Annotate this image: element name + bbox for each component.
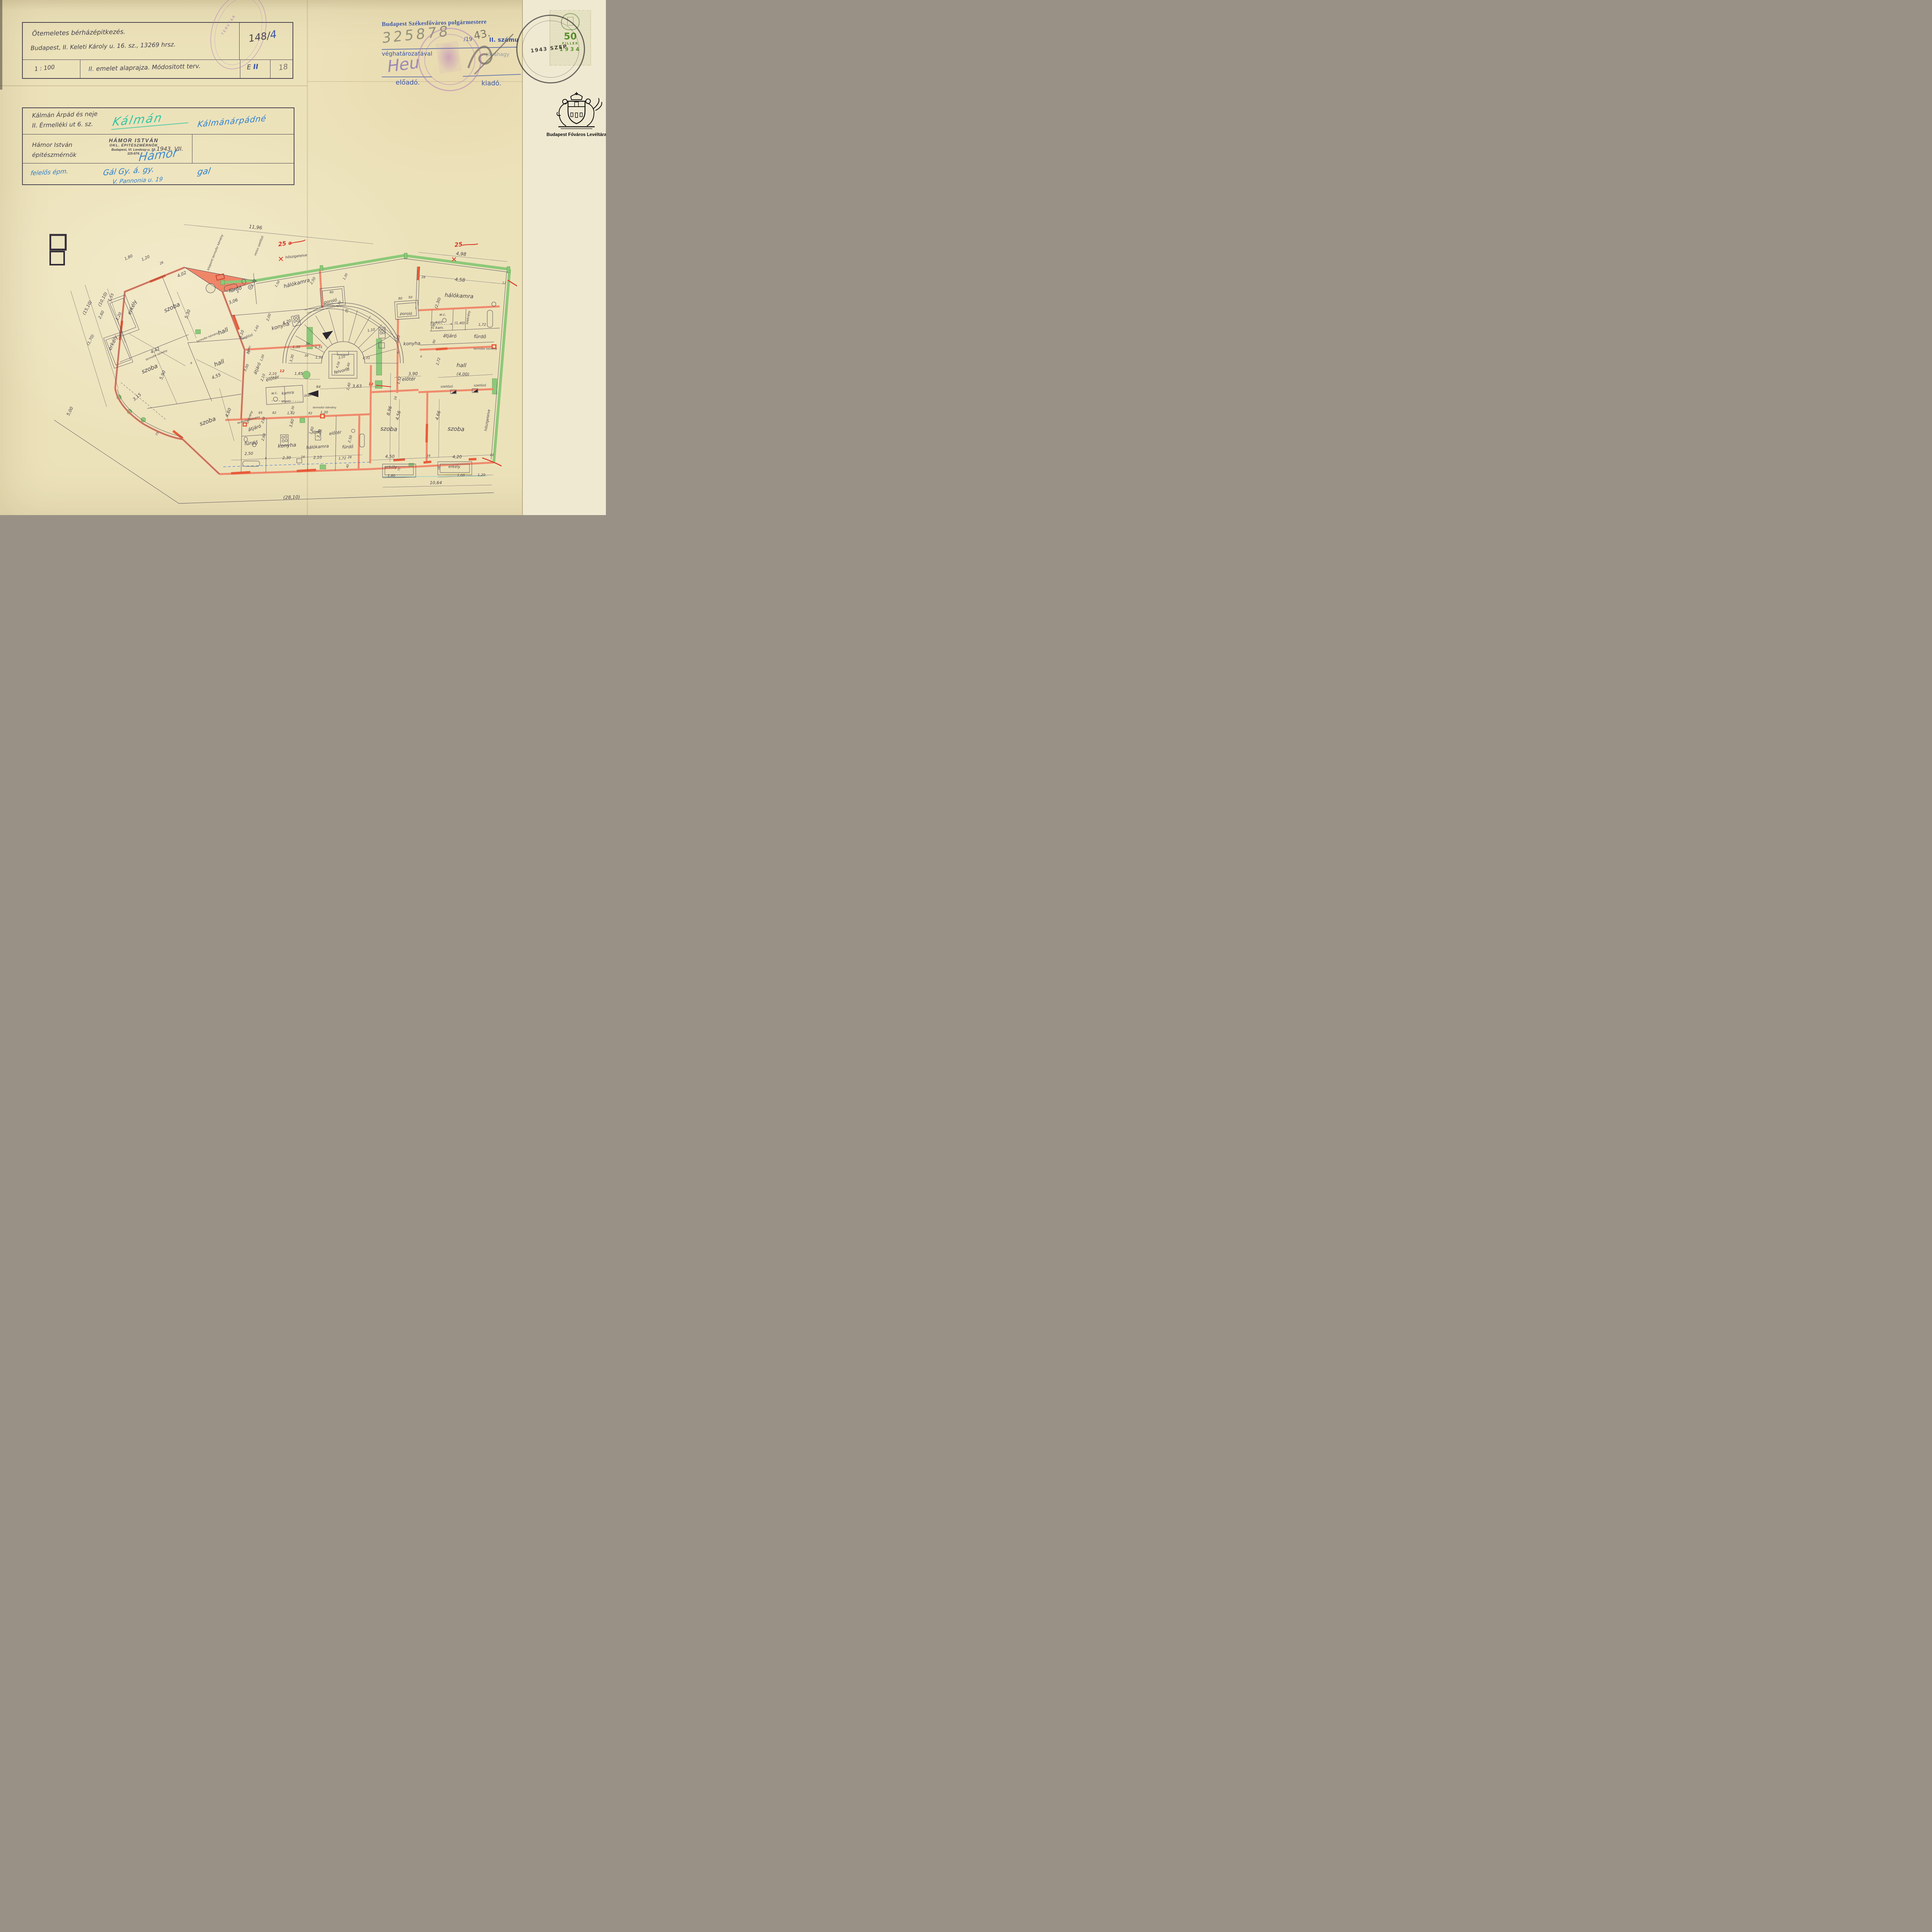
plan-label: hőszigetelve: [484, 409, 492, 431]
plan-label: 2,10: [338, 355, 345, 360]
plan-label: 3,30: [289, 354, 295, 362]
plan-label: poroló: [323, 298, 338, 305]
archive-logo: Budapest Főváros Levéltára: [546, 91, 606, 137]
plan-label: központi termofor kémény: [206, 234, 224, 271]
plan-label: 1,20: [478, 473, 485, 477]
plan-label: átjáró: [247, 423, 262, 432]
plan-label: 82: [272, 411, 276, 415]
plan-label: 4,58: [454, 277, 465, 283]
divider: [80, 60, 80, 78]
plan-label: 1,60: [457, 474, 465, 478]
plan-label: 30: [306, 342, 310, 346]
plan-label: 1,65: [253, 325, 260, 332]
plan-label: 90: [432, 339, 437, 344]
plan-label: 2,30: [282, 456, 291, 461]
plan-label: 6: [265, 457, 267, 460]
plan-label: hall: [456, 362, 466, 369]
plan-label: w.c.: [439, 313, 446, 317]
plan-label: 4,98: [456, 251, 466, 257]
plan-label: 80: [398, 297, 402, 300]
plan-label: 82: [308, 412, 312, 415]
plan-label: szoba: [141, 362, 159, 375]
plan-label: (1,70): [86, 334, 95, 346]
drawing-scale: 1 : 100: [34, 63, 55, 72]
plan-label: 1,31: [362, 356, 370, 360]
plan-label: 2,60: [261, 433, 267, 441]
plan-label: 4,50: [385, 454, 395, 459]
plan-label: 2,00: [266, 313, 272, 322]
plan-label: 4,56: [395, 410, 402, 421]
plan-label: 2,10: [313, 456, 322, 460]
plan-label: 1,72: [478, 323, 486, 327]
plan-label: szoba: [199, 415, 217, 427]
plan-label: 2,10: [269, 372, 277, 376]
plan-label: 4,55: [211, 372, 222, 380]
plan-label: 1,80: [124, 254, 134, 261]
plan-label: hőszigetelve: [285, 253, 308, 260]
plan-label: átjáró: [443, 333, 456, 338]
plan-label: (28,10): [283, 494, 300, 500]
yellow-fringe-line: [440, 474, 471, 474]
plan-label: előtér: [329, 430, 342, 437]
plan-label: (15,10): [82, 300, 93, 316]
plan-label: hálókamra: [445, 292, 474, 300]
wall-chunks: [120, 267, 476, 473]
plan-label: hall: [217, 326, 230, 337]
plan-label: 2,10: [396, 335, 401, 343]
sheet-code-letter: E: [247, 63, 252, 71]
plan-label: 1,20: [320, 411, 328, 415]
plan-label: kam.: [435, 326, 444, 330]
plan-label: 3,90: [408, 371, 418, 377]
plan-label: (10,10): [97, 291, 109, 308]
plan-label: 28: [437, 466, 441, 470]
plan-label: 4,56: [335, 361, 341, 369]
plan-label: 1,31: [315, 345, 323, 349]
plan-label: poroló: [400, 311, 412, 316]
plan-label: 28: [159, 261, 164, 265]
project-title: Ötemeletes bérházépitkezés.: [32, 28, 126, 37]
divider: [192, 134, 192, 163]
red-annotations: [289, 240, 517, 466]
floor-number-blue: II.: [88, 65, 94, 72]
plan-label: 5,90: [158, 370, 167, 381]
plan-label: vezuv szellőző: [253, 235, 264, 256]
plan-label: 4,66: [434, 410, 442, 421]
owner-signature: Kálmán: [111, 109, 191, 130]
bay-chord-dashed: [121, 383, 165, 419]
plan-label: (2,30): [434, 297, 442, 309]
plan-label: órák: [304, 393, 312, 398]
plan-label: 6: [190, 362, 192, 365]
green-wall-pieces: [117, 253, 510, 469]
vent-dashed-lines: [272, 324, 451, 401]
scan-artifacts: [50, 235, 66, 265]
plan-label: átjáró: [253, 362, 262, 375]
plan-label: konyha: [403, 340, 420, 347]
plan-label: 1,40: [346, 382, 352, 391]
plan-label: szellőző: [474, 384, 486, 387]
plan-label: konyha: [277, 442, 296, 449]
sheet-code: E II: [247, 63, 259, 71]
plan-label: 25 ⌀: [278, 239, 292, 248]
plan-label: 25: [454, 241, 463, 248]
plan-label: 4,20: [452, 454, 462, 459]
stamp-name: HÁMOR ISTVÁN: [99, 138, 169, 143]
plan-label: 2,50: [348, 435, 354, 443]
architect-name: Hámor István: [32, 141, 72, 148]
plan-label: 1,72: [338, 457, 347, 461]
plan-label: 2,60: [98, 310, 105, 320]
plan-label: 3,15: [132, 392, 142, 402]
owner-wife-signature: Kálmánárpádné: [197, 114, 267, 129]
plan-label: erkély: [449, 464, 461, 469]
scanned-blueprint-sheet: Ötemeletes bérházépitkezés. Budapest, II…: [0, 0, 606, 515]
plan-label: 16: [393, 396, 398, 400]
plan-label: 1,20: [141, 255, 151, 262]
plan-label: 10,64: [430, 480, 442, 485]
plan-label: 95: [259, 411, 262, 415]
plan-label: 1,60: [345, 362, 351, 370]
plan-label: szoba: [380, 425, 397, 433]
plan-label: 25: [345, 308, 349, 313]
plan-label: 30: [304, 354, 308, 357]
builder-note: felelős épm.: [30, 167, 69, 177]
partition-lines: [104, 259, 508, 477]
builder-address: V. Pannonia u. 19: [112, 176, 163, 185]
plan-label: 1,85: [294, 372, 303, 376]
plan-label: 11,96: [249, 224, 263, 231]
plan-label: 28: [348, 456, 352, 459]
plan-label: fürdő: [474, 333, 486, 339]
divider: [23, 134, 294, 134]
plan-label: w.c.: [271, 391, 278, 396]
plan-label: 1,50: [274, 280, 281, 288]
plan-label: 2,50: [310, 277, 317, 286]
plan-label: 4,60: [224, 407, 232, 418]
drawing-title: II. emelet alaprajza. Módositott terv.: [88, 62, 201, 73]
plan-label: fürdő: [342, 444, 354, 449]
plan-label: 12: [502, 281, 506, 285]
owner-name: Kálmán Árpád és neje: [32, 111, 98, 119]
plan-label: 80: [330, 291, 333, 294]
plan-label: 2,50: [245, 452, 253, 456]
plan-label: hall: [213, 358, 226, 368]
plan-label: 8,96: [386, 406, 393, 416]
plan-label: fürdő: [244, 440, 258, 447]
plan-label: 2,72: [436, 357, 442, 366]
plan-label: erkély: [107, 335, 119, 351]
builder-signature: Gál Gy. á. gy.: [102, 164, 155, 177]
plan-label: 1,31: [315, 356, 323, 360]
plan-label: 1,20: [435, 321, 442, 324]
plan-label: 1,30: [293, 345, 300, 349]
plan-label: 1,30: [342, 273, 349, 281]
plan-label: átszell.: [282, 400, 291, 403]
clerk-label: előadó.: [396, 79, 420, 87]
plan-label: 6: [420, 355, 422, 358]
postmark-date: 1943 SZEP: [530, 44, 568, 54]
plan-label: 50: [408, 296, 412, 299]
postmark: 1943 SZEP: [516, 15, 585, 83]
pencil-page-number: 18: [278, 62, 289, 72]
plan-label: 12: [490, 453, 494, 457]
plan-label: hálókamra: [283, 277, 311, 289]
plan-label: 3,63: [352, 384, 362, 389]
mayor-office-line: Budapest Székesfőváros polgármestere: [382, 17, 526, 28]
plan-label: 230: [260, 416, 266, 424]
plan-label: 16: [301, 455, 305, 459]
plan-label: 1,00: [259, 354, 265, 362]
oval-stamp-text: TERVTÁR: [221, 14, 237, 36]
plan-label: hálókamra: [306, 444, 329, 450]
plan-label: 1,55: [107, 293, 115, 302]
plan-label: 40: [345, 464, 350, 468]
plan-label: erkély: [127, 299, 139, 316]
plan-label: előtér: [402, 376, 416, 382]
plan-label: 6: [397, 351, 399, 354]
divider: [23, 163, 294, 163]
file-number-blue: 4: [269, 28, 277, 41]
plan-label: 6: [451, 323, 452, 326]
plan-label: 16: [427, 454, 430, 457]
date: 1943. VII.: [156, 146, 183, 152]
project-address: Budapest, II. Keleti Károly u. 16. sz., …: [31, 41, 176, 52]
plan-label: 3,60: [289, 418, 295, 428]
sheet-code-number: II: [253, 63, 259, 71]
architect-title: épitészmérnök: [32, 151, 77, 158]
plan-label: ✕: [451, 255, 457, 264]
plan-label: 1,60: [388, 474, 395, 478]
cyan-fringe-line: [383, 476, 487, 477]
plan-label: erkély: [385, 465, 398, 469]
plan-label: 3,06: [228, 297, 238, 305]
fold-crease-left: [0, 85, 307, 86]
archive-caption: Budapest Főváros Levéltára: [546, 132, 606, 137]
plan-label: (4,00): [456, 371, 469, 377]
plan-label: 12: [280, 369, 285, 373]
floor-plan: erkélyszobahallerkélyszobahallszobafürdő…: [49, 187, 517, 508]
plan-label: termofor kémény: [474, 347, 498, 350]
owner-address: II. Érmelléki ut 6. sz.: [32, 121, 93, 129]
owner-block: Kálmán Árpád és neje II. Érmelléki ut 6.…: [22, 107, 294, 185]
plan-label: 28: [422, 276, 425, 279]
archive-crest-icon: [548, 91, 605, 130]
scan-edge-artifact: [0, 0, 2, 90]
plan-label: 5,30: [184, 309, 192, 319]
builder-signature-2: gal: [197, 167, 211, 177]
issuer-label: kiadó.: [481, 80, 501, 87]
drawing-title-text: emelet alaprajza. Módositott terv.: [94, 62, 201, 72]
plan-label: 6: [237, 291, 239, 294]
plan-label: kamra: [281, 390, 294, 396]
plan-label: szellőző: [440, 385, 453, 388]
plan-label: 5,00: [66, 406, 75, 417]
plan-label: ✕: [278, 255, 284, 264]
plan-label: termofor kémény: [313, 406, 337, 409]
plan-label: 84: [316, 385, 321, 389]
plan-label: szoba: [447, 425, 464, 433]
plan-label: (1,40): [454, 321, 465, 325]
divider: [270, 60, 270, 78]
plan-label: 12: [369, 383, 374, 386]
plan-label: 4,02: [177, 270, 187, 279]
plan-label: szoba: [163, 301, 181, 314]
